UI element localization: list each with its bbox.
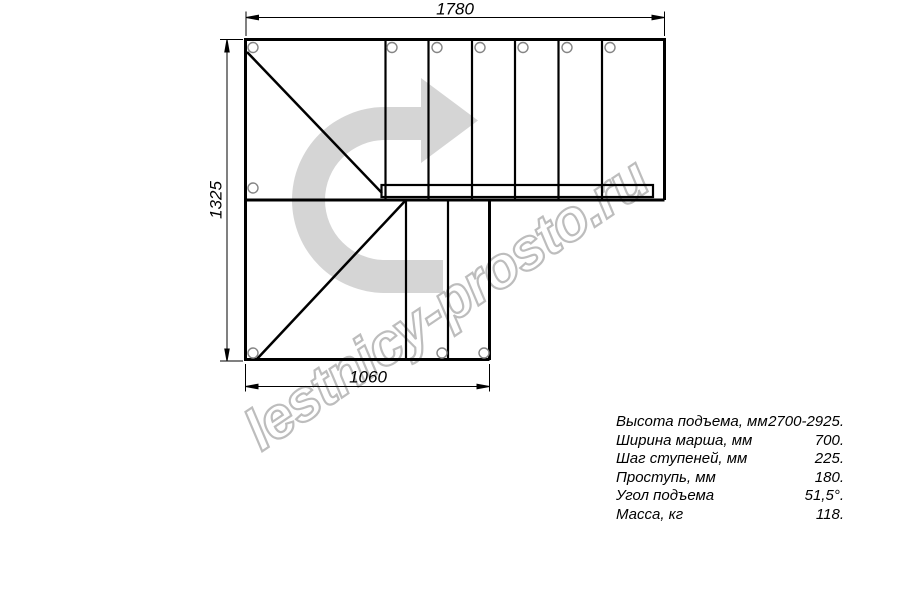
- dimension-top: 1780: [246, 0, 665, 36]
- spec-value: 180.: [815, 469, 844, 488]
- dimension-arrow: [477, 384, 490, 389]
- spec-row: Масса, кг 118.: [616, 506, 844, 525]
- spec-label: Проступь, мм: [616, 469, 716, 488]
- spec-row: Шаг ступеней, мм 225.: [616, 450, 844, 469]
- mounting-hole: [248, 348, 258, 358]
- mounting-hole: [248, 183, 258, 193]
- dimension-arrow: [225, 40, 229, 53]
- spec-row: Проступь, мм 180.: [616, 469, 844, 488]
- spec-value: 225.: [815, 450, 844, 469]
- spec-table: Высота подъема, мм 2700-2925. Ширина мар…: [616, 413, 844, 524]
- spec-row: Угол подъема 51,5°.: [616, 487, 844, 506]
- spec-label: Шаг ступеней, мм: [616, 450, 747, 469]
- mounting-hole: [248, 43, 258, 53]
- spec-row: Высота подъема, мм 2700-2925.: [616, 413, 844, 432]
- spec-value: 51,5°.: [805, 487, 844, 506]
- dimension-arrow: [225, 349, 229, 361]
- dimension-top-label: 1780: [436, 0, 474, 19]
- dimension-arrow: [246, 384, 259, 389]
- dimension-arrow: [652, 15, 665, 20]
- mounting-hole: [432, 43, 442, 53]
- spec-value: 2700-2925.: [768, 413, 844, 432]
- spec-label: Угол подъема: [616, 487, 714, 506]
- spec-label: Масса, кг: [616, 506, 683, 525]
- spec-value: 118.: [816, 506, 844, 525]
- spec-label: Ширина марша, мм: [616, 432, 752, 451]
- mounting-hole: [605, 43, 615, 53]
- spec-value: 700.: [815, 432, 844, 451]
- dimension-arrow: [246, 15, 259, 20]
- dimension-left: 1325: [207, 40, 244, 362]
- spec-label: Высота подъема, мм: [616, 413, 768, 432]
- dimension-bottom-label: 1060: [349, 368, 387, 387]
- dimension-left-label: 1325: [207, 181, 226, 219]
- mounting-hole: [518, 43, 528, 53]
- mounting-hole: [475, 43, 485, 53]
- mounting-hole: [437, 348, 447, 358]
- mounting-hole: [479, 348, 489, 358]
- drawing-page: lestnicy-prosto.ru: [0, 0, 900, 600]
- mounting-hole: [562, 43, 572, 53]
- mounting-hole: [387, 43, 397, 53]
- spec-row: Ширина марша, мм 700.: [616, 432, 844, 451]
